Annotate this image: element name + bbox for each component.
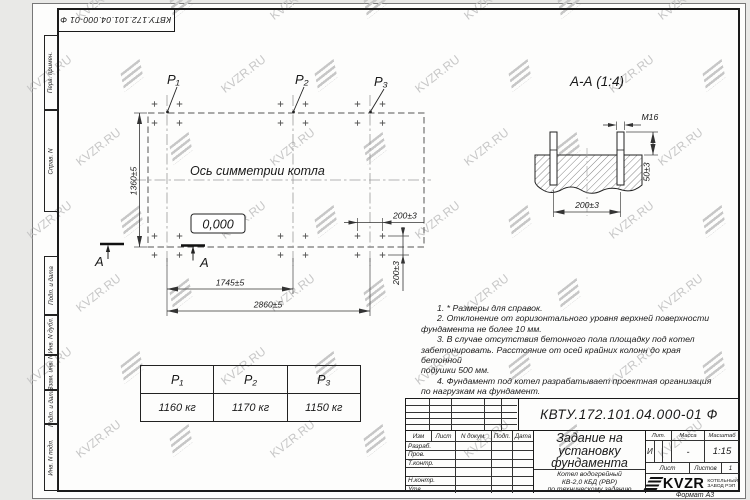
revision-cell xyxy=(485,424,502,430)
note-line: по нагрузкам на фундамент. xyxy=(421,386,723,396)
product-name: Котел водогрейный КВ-2,0 КБД (РВР) по те… xyxy=(534,469,645,493)
lit-value: И xyxy=(646,441,655,462)
stamp-doc-number: КВТУ.172.101.04.000-01 Ф xyxy=(60,15,171,25)
kvzr-logo-text: KVZR xyxy=(663,476,704,492)
lit-mass-scale-values: И - 1:15 xyxy=(646,440,739,462)
sig-label: Пров. xyxy=(406,451,456,459)
strip-cell-inv-dubl: Инв. N дубл. xyxy=(44,315,58,355)
title-block-main-row: Изм Лист N докум. Подп. Дата Разраб. Про… xyxy=(406,431,739,493)
product-line: по техническому заданию xyxy=(534,486,645,493)
strip-label: Подп. и дата xyxy=(48,266,55,305)
load-header-p3: P₃ xyxy=(287,366,360,394)
scale-label: Масштаб xyxy=(705,431,739,440)
mass-label: Масса xyxy=(672,431,705,440)
strip-cell-podp-data-2: Подп. и дата xyxy=(44,390,58,424)
col-data: Дата xyxy=(513,431,533,441)
col-podp: Подп. xyxy=(492,431,513,441)
sig-row: Т.контр. xyxy=(406,459,533,468)
col-list: Лист xyxy=(432,431,456,441)
title-block: КВТУ.172.101.04.000-01 Ф Изм Лист N доку… xyxy=(405,398,740,492)
strip-cell-vzam-inv: Взам. инв. N xyxy=(44,355,58,390)
strip-cell-perv-primen: Перв. примен. xyxy=(44,35,58,110)
kvzr-logo-icon xyxy=(643,477,663,490)
company-name: КОТЕЛЬНЫЙ ЗАВОД РЭП xyxy=(707,479,738,490)
note-line: 1. * Размеры для справок. xyxy=(421,303,723,313)
scale-value: 1:15 xyxy=(705,441,739,462)
sig-row: Н.контр. xyxy=(406,476,533,485)
sheet-label: Лист xyxy=(646,463,690,473)
strip-label: Инв. N дубл. xyxy=(48,317,55,353)
sig-row xyxy=(406,467,533,476)
revision-cell xyxy=(502,424,517,430)
technical-notes: 1. * Размеры для справок. 2. Отклонение … xyxy=(421,303,723,397)
load-value-p2: 1170 кг xyxy=(214,394,287,422)
sig-label: Н.контр. xyxy=(406,477,456,485)
lit-cells: И xyxy=(646,441,672,462)
product-line: Котел водогрейный xyxy=(534,471,645,478)
signature-columns: Изм Лист N докум. Подп. Дата xyxy=(406,431,533,441)
revision-grid xyxy=(406,399,519,430)
load-header-p2: P₂ xyxy=(214,366,287,394)
note-line: подушки 500 мм. xyxy=(421,365,723,375)
strip-cell-inv-podl: Инв. N подл. xyxy=(44,424,58,491)
note-line: 3. В случае отсутствия бетонного пола пл… xyxy=(421,334,723,344)
sig-label: Утв. xyxy=(406,486,456,494)
load-table-header-row: P₁ P₂ P₃ xyxy=(141,366,361,394)
drawing-title-cell: Задание на установку фундамента Котел во… xyxy=(534,431,646,493)
title-block-right: Лит. Масса Масштаб И - 1:15 Лист Листов … xyxy=(646,431,739,493)
revision-cell xyxy=(406,424,430,430)
strip-label: Взам. инв. N xyxy=(48,354,55,390)
load-table: P₁ P₂ P₃ 1160 кг 1170 кг 1150 кг xyxy=(140,365,361,422)
strip-cell-podp-data-1: Подп. и дата xyxy=(44,256,58,315)
col-izm: Изм xyxy=(406,431,432,441)
note-line: забетонировать. Расстояние от осей крайн… xyxy=(421,345,723,366)
document-number: КВТУ.172.101.04.000-01 Ф xyxy=(519,399,739,430)
drawing-title: Задание на установку фундамента xyxy=(534,431,645,469)
signature-block: Изм Лист N докум. Подп. Дата Разраб. Про… xyxy=(406,431,534,493)
sheet-row: Лист Листов 1 xyxy=(646,462,739,473)
sheets-label: Листов xyxy=(690,463,722,473)
strip-label: Перв. примен. xyxy=(48,52,55,93)
format-label: Формат А3 xyxy=(650,492,740,499)
lit-mass-scale-headers: Лит. Масса Масштаб xyxy=(646,431,739,440)
sig-label: Т.контр. xyxy=(406,460,456,468)
revision-cell xyxy=(430,424,452,430)
revision-cell xyxy=(452,424,485,430)
load-header-p1: P₁ xyxy=(141,366,214,394)
title-line: Задание на xyxy=(534,432,645,444)
strip-label: Справ. N xyxy=(48,148,55,174)
top-left-stamp: КВТУ.172.101.04.000-01 Ф xyxy=(57,8,175,32)
sig-label: Разраб. xyxy=(406,442,456,450)
title-line: фундамента xyxy=(534,457,645,469)
strip-cell-sprav-n: Справ. N xyxy=(44,110,58,212)
note-line: фундамента не более 10 мм. xyxy=(421,324,723,334)
company-name-line: ЗАВОД РЭП xyxy=(707,484,738,489)
col-ndokum: N докум. xyxy=(456,431,492,441)
strip-label: Инв. N подл. xyxy=(48,439,55,475)
sig-row: Разраб. xyxy=(406,441,533,450)
load-table-value-row: 1160 кг 1170 кг 1150 кг xyxy=(141,394,361,422)
mass-value: - xyxy=(672,441,705,462)
load-value-p3: 1150 кг xyxy=(287,394,360,422)
load-value-p1: 1160 кг xyxy=(141,394,214,422)
lit-label: Лит. xyxy=(646,431,672,440)
sheets-value: 1 xyxy=(722,463,739,473)
title-block-top-row: КВТУ.172.101.04.000-01 Ф xyxy=(406,399,739,431)
note-line: 2. Отклонение от горизонтального уровня … xyxy=(421,313,723,323)
strip-label: Подп. и дата xyxy=(48,388,55,427)
note-line: 4. Фундамент под котел разрабатывает про… xyxy=(421,376,723,386)
product-line: КВ-2,0 КБД (РВР) xyxy=(534,479,645,486)
company-logo-cell: KVZR КОТЕЛЬНЫЙ ЗАВОД РЭП xyxy=(646,473,739,493)
scanned-drawing-page: KVZR.RUKVZR.RUKVZR.RUKVZR.RUKVZR.RUKVZR.… xyxy=(0,0,750,500)
sig-row: Пров. xyxy=(406,450,533,459)
sig-row: Утв. xyxy=(406,485,533,494)
sig-label xyxy=(406,468,456,476)
